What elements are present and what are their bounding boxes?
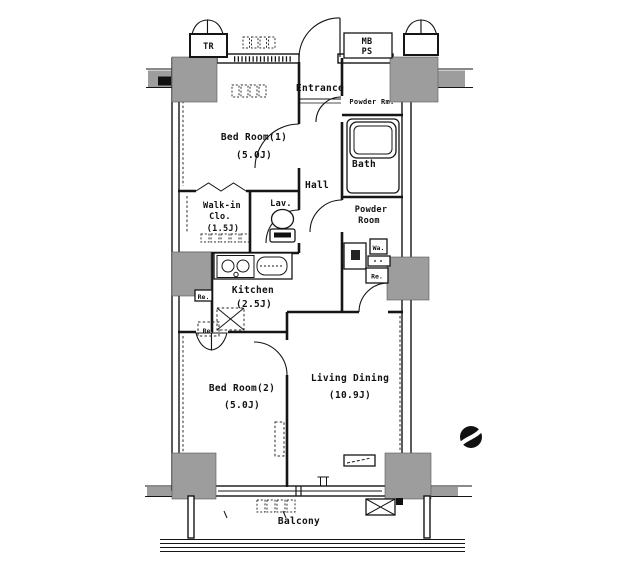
- floor-plan: TR MB PS Entrance Powder Rm. Bath Hall B…: [0, 0, 640, 569]
- bifold-door: [196, 183, 246, 191]
- living-details: [318, 455, 376, 486]
- living-dining-label: Living Dining: [311, 373, 389, 384]
- entrance-label: Entrance: [296, 83, 344, 94]
- lavatory-label: Lav.: [270, 199, 292, 209]
- bath-label: Bath: [352, 159, 376, 170]
- service-boxes: [190, 20, 438, 58]
- washer-label: Wa.: [373, 244, 385, 252]
- labels: TR MB PS Entrance Powder Rm. Bath Hall B…: [198, 37, 395, 527]
- meter-box-label: MB: [362, 37, 373, 47]
- balcony-label: Balcony: [278, 516, 320, 527]
- column-top-right: [390, 57, 438, 102]
- refrigerator-label-1: Re.: [371, 273, 383, 281]
- living-dining-size: (10.9J): [329, 390, 371, 401]
- counter-box: [368, 256, 390, 266]
- dashed-note-bedroom1: [232, 85, 266, 97]
- balcony-wall-left: [188, 496, 194, 538]
- hatch-marker: [396, 498, 403, 505]
- north-mark-icon: [460, 426, 482, 448]
- bedroom1-size: (5.0J): [236, 150, 272, 161]
- dashed-note-top: [243, 37, 275, 48]
- bathtub-icon: [350, 122, 396, 158]
- closet-dashed: [275, 422, 284, 456]
- stub-gray-right-top: [437, 71, 465, 88]
- bedroom2-door-arc: [254, 342, 287, 375]
- kitchen-label: Kitchen: [232, 285, 274, 296]
- double-door-icon: [208, 20, 224, 34]
- entrance-step: [299, 99, 341, 103]
- powder-room-label-1: Powder: [355, 205, 388, 215]
- powder-room-door-arc: [310, 200, 342, 232]
- trunk-room-label: TR: [203, 42, 214, 52]
- kitchen-size: (2.5J): [236, 299, 272, 310]
- hall-label: Hall: [305, 180, 329, 191]
- service-box: [404, 34, 438, 55]
- living-door-arc: [359, 283, 388, 312]
- walk-in-closet-label-2: Clo.: [209, 212, 231, 222]
- column-bottom-right: [385, 453, 431, 499]
- column-top-left: [172, 57, 217, 102]
- column-mid-right: [387, 257, 429, 300]
- stub-gray-right-bottom: [430, 487, 458, 496]
- double-door-icon: [406, 20, 422, 34]
- walk-in-closet-label-1: Walk-in: [203, 200, 241, 211]
- stub-gray-left-bottom: [147, 487, 172, 496]
- bedroom1-label: Bed Room(1): [221, 132, 287, 143]
- refrigerator-label-2: Re.: [198, 293, 210, 301]
- toilet-icon: [270, 210, 295, 243]
- powder-rm-door-arc: [316, 97, 341, 122]
- column-bottom-left: [172, 453, 216, 499]
- basin-bowl: [351, 250, 360, 260]
- double-door-icon: [421, 20, 437, 34]
- bath-fixtures: [347, 119, 399, 193]
- floor-plan-drawing: TR MB PS Entrance Powder Rm. Bath Hall B…: [0, 0, 640, 569]
- balcony-wall-right: [424, 496, 430, 538]
- powder-rm-label: Powder Rm.: [349, 98, 394, 106]
- pipe-space-label: PS: [362, 47, 373, 57]
- entrance-door-arc: [299, 18, 340, 57]
- wall-cap: [158, 77, 171, 86]
- powder-room-label-2: Room: [358, 216, 380, 226]
- refrigerator-label-3: Re.: [203, 327, 215, 335]
- bedroom2-size: (5.0J): [224, 400, 260, 411]
- dashed-note-balcony: [257, 500, 295, 512]
- walk-in-closet-size: (1.5J): [207, 224, 240, 234]
- outlet-symbol: [318, 477, 330, 486]
- double-door-icon: [192, 20, 208, 34]
- bedroom1-door-arc: [255, 124, 299, 168]
- bedroom2-label: Bed Room(2): [209, 383, 275, 394]
